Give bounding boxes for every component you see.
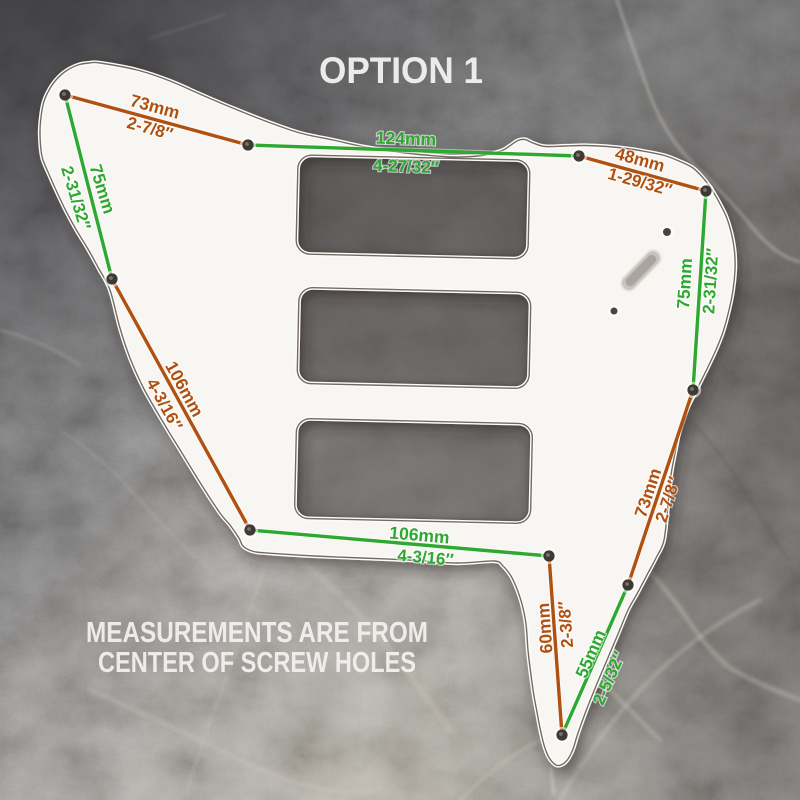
svg-text:OPTION 1: OPTION 1: [319, 49, 483, 91]
svg-text:CENTER OF SCREW HOLES: CENTER OF SCREW HOLES: [98, 647, 416, 679]
svg-text:75mm: 75mm: [673, 258, 696, 310]
svg-text:60mm: 60mm: [533, 602, 557, 654]
svg-text:2-3/8″: 2-3/8″: [555, 600, 577, 648]
svg-text:4-27/32″: 4-27/32″: [373, 156, 439, 177]
svg-text:124mm: 124mm: [376, 128, 437, 150]
svg-text:MEASUREMENTS ARE FROM: MEASUREMENTS ARE FROM: [86, 617, 428, 649]
